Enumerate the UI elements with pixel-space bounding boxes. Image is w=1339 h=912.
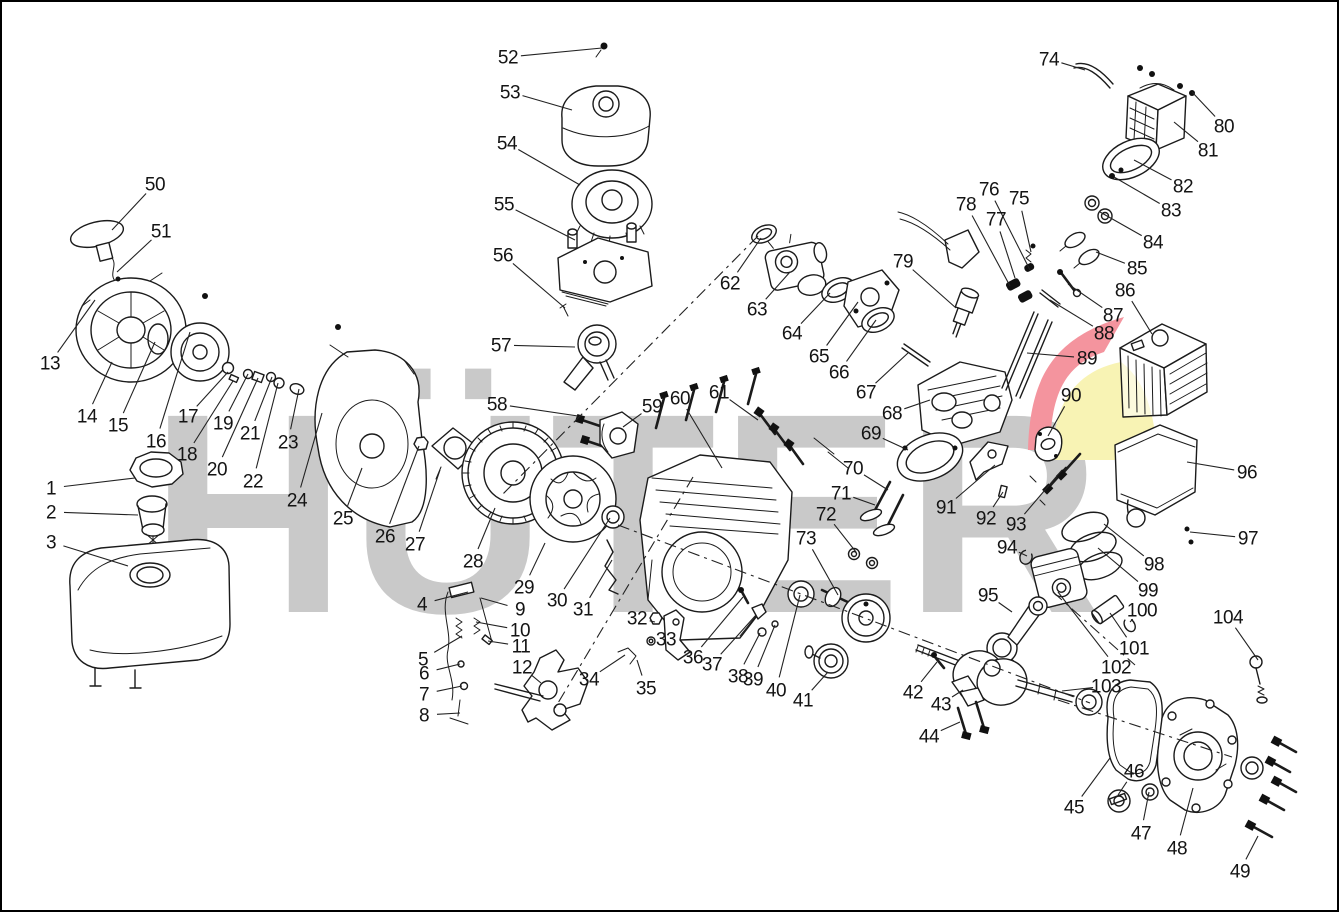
leader-line-8 — [437, 713, 460, 714]
leader-line-56 — [513, 263, 565, 308]
part-number-83: 83 — [1161, 201, 1181, 222]
part-number-17: 17 — [178, 407, 198, 428]
part-number-73: 73 — [796, 529, 816, 550]
part-number-67: 67 — [856, 383, 876, 404]
part-number-86: 86 — [1115, 281, 1135, 302]
part-number-84: 84 — [1143, 233, 1164, 254]
part-number-42: 42 — [903, 683, 923, 704]
part-number-69: 69 — [861, 424, 881, 445]
part-number-20: 20 — [207, 460, 227, 481]
part-number-103: 103 — [1091, 677, 1121, 698]
part-number-58: 58 — [487, 395, 507, 416]
part-number-43: 43 — [931, 695, 951, 716]
part-number-60: 60 — [670, 389, 690, 410]
part-label-85: 85 — [1096, 252, 1147, 280]
part-number-82: 82 — [1173, 177, 1193, 198]
part-number-28: 28 — [463, 552, 483, 573]
flywheel-nut — [414, 437, 428, 450]
part-number-55: 55 — [494, 195, 514, 216]
end-bearing — [1241, 757, 1263, 779]
part-number-18: 18 — [177, 445, 197, 466]
part-label-49: 49 — [1230, 836, 1258, 883]
muffler-protector — [1115, 425, 1197, 527]
leader-line-51 — [117, 240, 152, 272]
part-label-33: 33 — [652, 630, 676, 651]
part-number-25: 25 — [333, 509, 353, 530]
leader-line-97 — [1190, 532, 1235, 537]
part-number-34: 34 — [579, 670, 600, 691]
part-number-33: 33 — [656, 630, 676, 651]
part-number-97: 97 — [1238, 529, 1258, 550]
part-label-75: 75 — [1009, 189, 1031, 253]
part-label-41: 41 — [793, 672, 828, 712]
part-number-44: 44 — [919, 727, 940, 748]
part-number-62: 62 — [720, 274, 740, 295]
muffler — [1120, 324, 1207, 417]
leader-line-83 — [1114, 177, 1160, 204]
oil-drain-valve — [1250, 656, 1267, 703]
part-number-104: 104 — [1213, 608, 1244, 629]
part-number-93: 93 — [1006, 515, 1026, 536]
part-number-89: 89 — [1077, 349, 1097, 370]
fuel-cap — [130, 452, 183, 487]
part-label-52: 52 — [498, 48, 602, 69]
fuel-tube — [1074, 63, 1113, 88]
part-number-31: 31 — [573, 600, 593, 621]
part-number-12: 12 — [512, 658, 532, 679]
cover-bolts — [1245, 736, 1296, 837]
part-label-100: 100 — [1127, 601, 1157, 623]
part-number-46: 46 — [1124, 762, 1144, 783]
leader-line-1 — [64, 478, 135, 487]
part-number-92: 92 — [976, 509, 996, 530]
ignition-hardware — [1005, 244, 1036, 304]
part-label-83: 83 — [1114, 177, 1181, 222]
part-number-29: 29 — [514, 578, 534, 599]
part-number-9: 9 — [515, 600, 525, 621]
part-number-96: 96 — [1237, 463, 1257, 484]
intake-manifold — [600, 412, 638, 458]
part-number-98: 98 — [1144, 555, 1164, 576]
part-number-14: 14 — [77, 407, 98, 428]
leader-line-86 — [1132, 301, 1152, 334]
part-label-64: 64 — [782, 293, 830, 345]
part-label-104: 104 — [1213, 608, 1258, 661]
leader-line-80 — [1192, 92, 1215, 117]
part-number-1: 1 — [46, 479, 56, 500]
part-number-71: 71 — [831, 484, 851, 505]
part-number-52: 52 — [498, 48, 518, 69]
part-label-53: 53 — [500, 83, 572, 111]
part-number-94: 94 — [997, 538, 1018, 559]
part-number-53: 53 — [500, 83, 520, 104]
part-number-70: 70 — [843, 459, 863, 480]
part-label-63: 63 — [747, 272, 790, 321]
leader-line-87 — [1068, 284, 1102, 308]
leader-line-64 — [801, 293, 830, 324]
rope-pulley — [171, 323, 229, 381]
part-number-66: 66 — [829, 363, 849, 384]
part-number-26: 26 — [375, 527, 395, 548]
part-number-47: 47 — [1131, 824, 1151, 845]
part-number-64: 64 — [782, 324, 803, 345]
part-label-96: 96 — [1187, 462, 1257, 484]
carb-gasket-small — [749, 221, 779, 246]
part-number-88: 88 — [1094, 324, 1114, 345]
part-number-37: 37 — [702, 655, 722, 676]
part-number-21: 21 — [240, 424, 260, 445]
part-number-79: 79 — [893, 252, 913, 273]
part-number-50: 50 — [145, 175, 165, 196]
part-number-101: 101 — [1119, 639, 1149, 660]
part-label-80: 80 — [1192, 92, 1234, 138]
part-number-7: 7 — [419, 685, 429, 706]
base-stud — [560, 304, 568, 316]
part-number-6: 6 — [419, 664, 429, 685]
part-number-49: 49 — [1230, 862, 1250, 883]
parts-diagram-page: HÜTER — [0, 0, 1339, 912]
leader-line-84 — [1100, 212, 1142, 236]
spark-plug — [898, 212, 980, 339]
part-number-13: 13 — [40, 354, 60, 375]
part-number-57: 57 — [491, 336, 511, 357]
part-number-91: 91 — [936, 498, 956, 519]
part-number-77: 77 — [986, 210, 1006, 231]
part-label-62: 62 — [720, 238, 761, 295]
part-number-45: 45 — [1064, 798, 1084, 819]
part-number-68: 68 — [882, 404, 902, 425]
leader-line-62 — [737, 238, 761, 272]
part-label-81: 81 — [1174, 122, 1218, 162]
part-label-103: 103 — [1062, 677, 1121, 698]
part-number-2: 2 — [46, 503, 56, 524]
part-number-78: 78 — [956, 195, 976, 216]
part-label-45: 45 — [1064, 758, 1110, 819]
part-label-55: 55 — [494, 195, 575, 241]
breather-plate — [1035, 427, 1062, 461]
part-number-32: 32 — [627, 609, 647, 630]
part-number-81: 81 — [1198, 141, 1218, 162]
leader-line-57 — [514, 345, 575, 347]
airbox-small-parts — [1060, 168, 1124, 269]
part-number-80: 80 — [1214, 117, 1234, 138]
part-number-48: 48 — [1167, 839, 1187, 860]
oil-seal — [1142, 784, 1158, 800]
part-label-57: 57 — [491, 336, 575, 357]
part-number-90: 90 — [1061, 386, 1081, 407]
leader-line-75 — [1022, 211, 1031, 252]
air-filter-cover — [562, 86, 650, 166]
part-number-65: 65 — [809, 347, 829, 368]
part-number-85: 85 — [1127, 259, 1147, 280]
leader-line-44 — [941, 722, 960, 731]
part-number-3: 3 — [46, 533, 56, 554]
leader-line-88 — [1050, 300, 1093, 326]
part-number-95: 95 — [978, 586, 998, 607]
part-number-4: 4 — [417, 595, 428, 616]
part-number-16: 16 — [146, 432, 166, 453]
part-number-36: 36 — [683, 648, 703, 669]
part-label-51: 51 — [117, 222, 171, 273]
cover-screws — [1185, 527, 1194, 545]
part-label-44: 44 — [919, 722, 960, 748]
part-number-41: 41 — [793, 691, 813, 712]
part-number-74: 74 — [1039, 50, 1060, 71]
part-number-30: 30 — [547, 591, 567, 612]
part-number-76: 76 — [979, 180, 999, 201]
part-number-19: 19 — [213, 414, 233, 435]
part-number-99: 99 — [1138, 581, 1158, 602]
leader-line-45 — [1082, 758, 1110, 797]
part-number-35: 35 — [636, 679, 656, 700]
exploded-engine-diagram: HÜTER — [0, 0, 1339, 912]
part-label-56: 56 — [493, 246, 565, 309]
part-number-11: 11 — [512, 637, 531, 658]
leader-line-55 — [516, 210, 575, 240]
part-number-40: 40 — [766, 681, 786, 702]
part-number-63: 63 — [747, 300, 767, 321]
leader-line-49 — [1246, 836, 1258, 859]
part-label-8: 8 — [419, 706, 460, 727]
part-label-79: 79 — [893, 252, 956, 309]
part-number-27: 27 — [405, 535, 425, 556]
part-number-23: 23 — [278, 433, 298, 454]
air-filter-element — [572, 170, 652, 245]
part-number-54: 54 — [497, 134, 518, 155]
part-label-2: 2 — [46, 503, 138, 524]
part-number-22: 22 — [243, 472, 263, 493]
leader-line-65 — [827, 302, 858, 346]
part-number-61: 61 — [709, 383, 729, 404]
part-label-7: 7 — [419, 685, 462, 706]
leader-line-79 — [913, 270, 956, 308]
part-label-74: 74 — [1039, 50, 1085, 71]
leader-line-7 — [437, 686, 462, 691]
part-number-102: 102 — [1101, 658, 1131, 679]
part-label-97: 97 — [1190, 529, 1258, 550]
part-label-1: 1 — [46, 478, 135, 500]
air-filter-screw-tip — [596, 50, 601, 57]
leader-line-52 — [521, 48, 602, 56]
part-number-56: 56 — [493, 246, 513, 267]
part-number-8: 8 — [419, 706, 429, 727]
part-number-100: 100 — [1127, 601, 1157, 622]
part-number-72: 72 — [816, 505, 836, 526]
part-number-15: 15 — [108, 416, 128, 437]
part-number-59: 59 — [642, 397, 662, 418]
leader-line-85 — [1096, 252, 1125, 263]
part-number-75: 75 — [1009, 189, 1029, 210]
leader-line-2 — [64, 512, 138, 515]
part-number-24: 24 — [287, 491, 308, 512]
leader-line-104 — [1235, 628, 1258, 660]
part-number-39: 39 — [743, 670, 763, 691]
leader-line-50 — [112, 194, 146, 231]
part-number-51: 51 — [151, 222, 171, 243]
